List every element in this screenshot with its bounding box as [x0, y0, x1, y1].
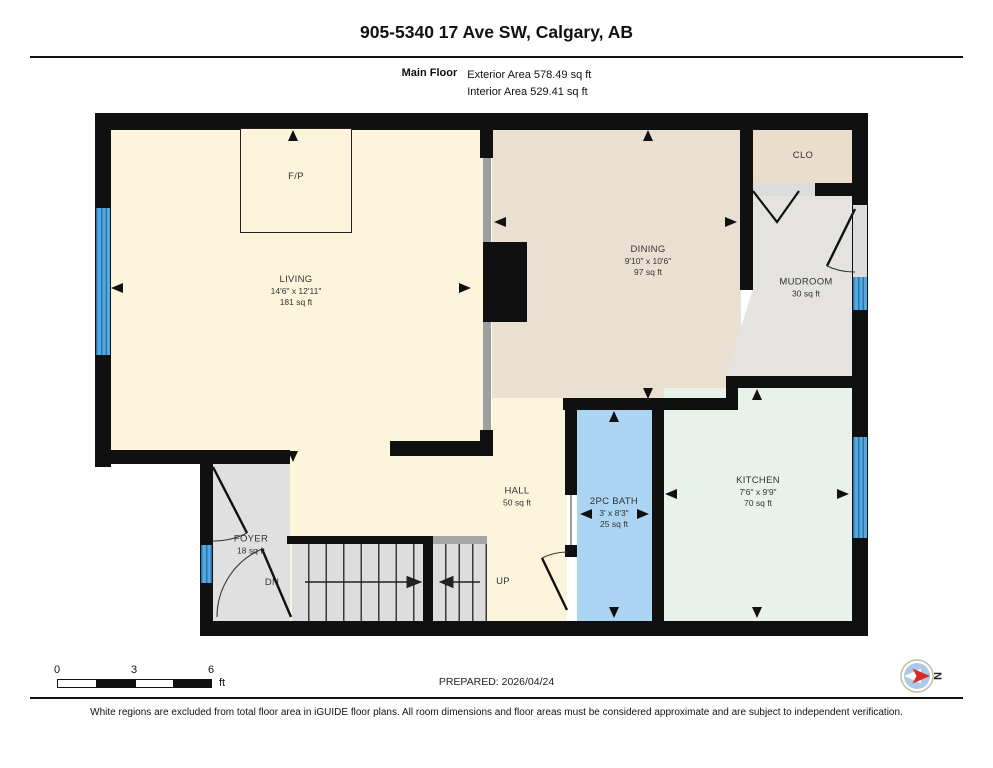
floor-areas: Exterior Area 578.49 sq ft Interior Area…: [467, 67, 591, 101]
prepared-date: PREPARED: 2026/04/24: [0, 676, 993, 688]
foyer-window: [201, 545, 212, 583]
floor-plan-page: 905-5340 17 Ave SW, Calgary, AB Main Flo…: [0, 0, 993, 768]
stairs-up-cap: [433, 536, 487, 544]
floor-label: Main Floor: [402, 67, 458, 101]
interior-area: Interior Area 529.41 sq ft: [467, 84, 591, 101]
mudroom-label: MUDROOM 30 sq ft: [779, 276, 832, 299]
hall-label: HALL 50 sq ft: [503, 485, 531, 508]
entry-door-threshold: [853, 205, 867, 277]
footer-divider: [30, 697, 963, 699]
wall-bath-right: [652, 398, 664, 621]
partition-living-dining-lower: [483, 322, 491, 430]
wall-bath-kitchen-top: [563, 398, 738, 410]
dining-room-floor: [492, 130, 741, 398]
wall-hall-top: [390, 441, 492, 456]
wall-dining-top-stub: [480, 113, 493, 158]
floor-info: Main Floor Exterior Area 578.49 sq ft In…: [0, 67, 993, 101]
kitchen-window: [853, 437, 867, 538]
scale-tick-6: 6: [203, 664, 219, 676]
disclaimer-text: White regions are excluded from total fl…: [0, 707, 993, 718]
wall-stairs-top: [287, 536, 428, 544]
living-window: [96, 208, 110, 355]
wall-closet-left: [740, 113, 753, 290]
stairs-down: [292, 543, 428, 621]
page-title: 905-5340 17 Ave SW, Calgary, AB: [0, 22, 993, 43]
wall-closet-bottom: [815, 183, 853, 196]
scale-tick-3: 3: [126, 664, 142, 676]
wall-mudroom-bottom: [726, 376, 860, 388]
wall-bath-left: [565, 398, 577, 495]
foyer-label: FOYER 18 sq ft: [234, 533, 268, 556]
wall-living-bottom: [95, 450, 290, 464]
wall-bath-left-stub: [565, 545, 577, 557]
hall-floor-upper: [492, 392, 567, 450]
stairs-up: [433, 544, 487, 621]
dining-label: DINING 9'10" x 10'6" 97 sq ft: [625, 244, 672, 278]
closet-opening: [753, 183, 815, 196]
fireplace-label: F/P: [288, 171, 304, 183]
bath-label: 2PC BATH 3' x 8'3" 25 sq ft: [590, 496, 638, 530]
wall-bottom: [200, 621, 868, 636]
stairs-up-label: UP: [496, 576, 510, 588]
header-divider: [30, 56, 963, 58]
partition-living-dining-upper: [483, 155, 491, 242]
chimney-block: [483, 242, 527, 322]
scale-tick-0: 0: [49, 664, 65, 676]
mudroom-window: [853, 277, 867, 310]
stairs-down-label: DN: [265, 577, 279, 589]
kitchen-label: KITCHEN 7'6" x 9'9" 70 sq ft: [736, 475, 780, 509]
wall-right: [852, 113, 868, 636]
closet-label: CLO: [793, 150, 813, 162]
wall-stairs-divider: [423, 536, 433, 621]
exterior-area: Exterior Area 578.49 sq ft: [467, 67, 591, 84]
living-label: LIVING 14'6" x 12'11" 181 sq ft: [271, 274, 322, 308]
